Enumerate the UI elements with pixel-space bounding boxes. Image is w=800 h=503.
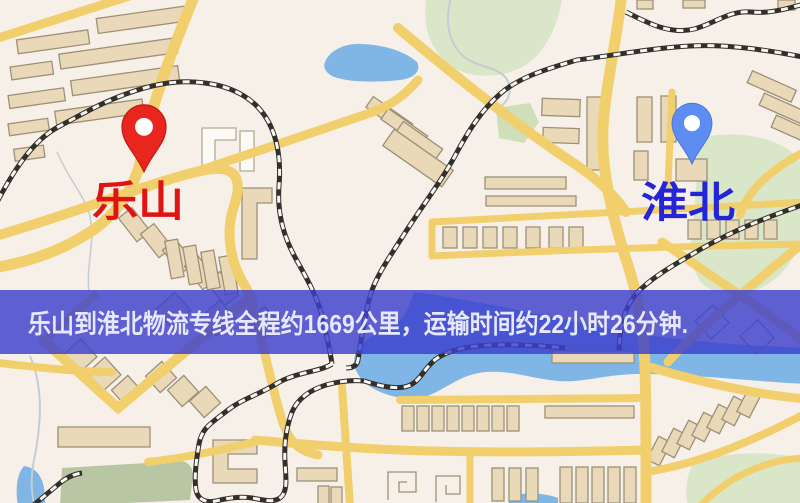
destination-label: 淮北 [641,179,735,226]
destination-pin-hole [684,115,700,131]
banner-text: 乐山到淮北物流专线全程约1669公里，运输时间约22小时26分钟. [28,309,688,339]
origin-pin-hole [135,118,153,136]
field-bottom-left [60,461,193,503]
route-map-image: 乐山到淮北物流专线全程约1669公里，运输时间约22小时26分钟. 乐山 淮北 [0,0,800,503]
origin-label: 乐山 [92,178,184,225]
map-canvas: 乐山到淮北物流专线全程约1669公里，运输时间约22小时26分钟. 乐山 淮北 [0,0,800,503]
